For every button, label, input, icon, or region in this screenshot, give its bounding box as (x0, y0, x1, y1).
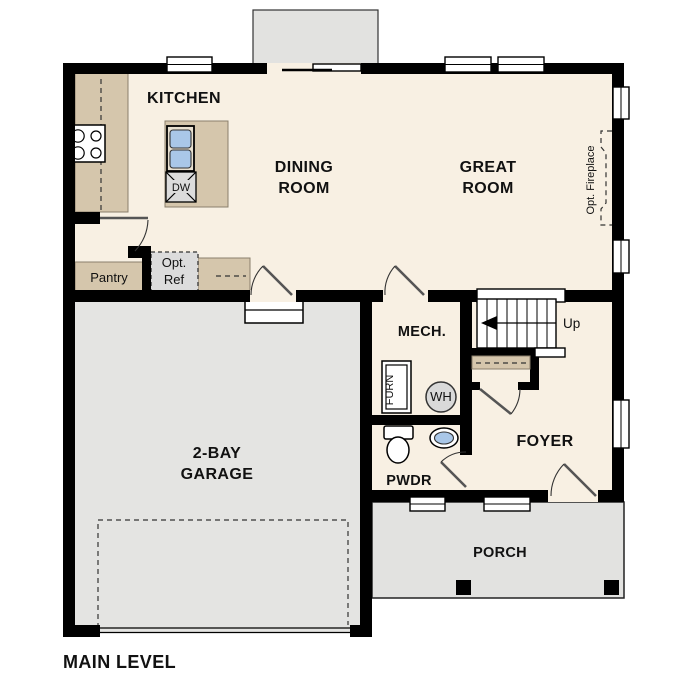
porch-post-left (456, 580, 471, 595)
wall-pantry-stub-top (75, 212, 100, 224)
stair-bottom-nosing (535, 348, 565, 357)
wall-pantry-ref-divider (142, 246, 151, 292)
floor-plan-page: DW (0, 0, 687, 687)
ref-side-counter (198, 258, 250, 292)
stairs-up-label: Up (563, 316, 580, 331)
great-room-label-line1: GREAT (460, 159, 517, 176)
wall-closet-stub-right (518, 382, 539, 390)
wall-closet-stub-left (460, 382, 480, 390)
opt-fireplace-label: Opt. Fireplace (585, 145, 597, 214)
dining-room-label-line2: ROOM (278, 180, 329, 197)
furnace-label: FURN (384, 375, 396, 406)
garage-label-line2: GARAGE (181, 466, 254, 483)
garage-label-line1: 2-BAY (193, 445, 242, 462)
great-room-label-line2: ROOM (462, 180, 513, 197)
wall-mech-right (460, 290, 472, 455)
pantry-label: Pantry (90, 270, 128, 285)
foyer-label: FOYER (516, 433, 573, 450)
porch-post-right (604, 580, 619, 595)
pwdr-label: PWDR (386, 473, 432, 489)
wall-mid-a (63, 290, 250, 302)
dishwasher: DW (166, 172, 196, 202)
wall-garage-right (360, 290, 372, 637)
wall-garage-bottom-right (350, 625, 372, 637)
porch-label: PORCH (473, 545, 527, 561)
wall-mid-d (565, 290, 624, 302)
mech-label: MECH. (398, 324, 446, 340)
rear-patio-stoop (253, 10, 378, 66)
kitchen-label: KITCHEN (147, 90, 221, 107)
wall-bottom-b (598, 490, 624, 502)
dishwasher-label: DW (172, 182, 191, 194)
island-sink (167, 126, 194, 171)
wall-garage-bottom-left (63, 625, 100, 637)
wall-left (63, 63, 75, 637)
floor-plan-drawing: DW (0, 0, 687, 687)
pwdr-sink (430, 428, 458, 448)
opt-ref-label-line2: Ref (164, 272, 185, 287)
plan-title: MAIN LEVEL (63, 652, 176, 672)
opt-ref-label-line1: Opt. (162, 255, 187, 270)
staircase (472, 289, 565, 369)
water-heater-label: WH (430, 389, 452, 404)
wall-mech-pwdr-divider (360, 415, 472, 425)
dining-room-label-line1: DINING (275, 159, 333, 176)
